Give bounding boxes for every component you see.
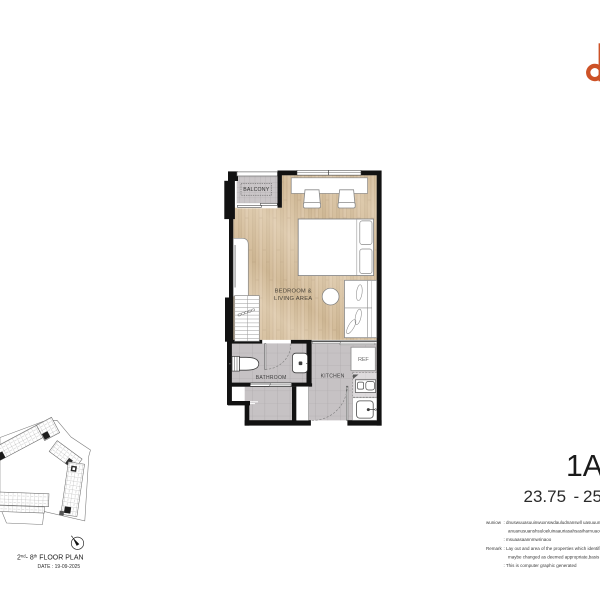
svg-text:KITCHEN: KITCHEN	[321, 373, 345, 379]
svg-text:-: -	[574, 487, 580, 506]
svg-text:BEDROOM &: BEDROOM &	[275, 289, 312, 295]
svg-text:wuniow: wuniow	[486, 520, 502, 525]
svg-text:REF: REF	[358, 357, 369, 363]
svg-text:DATE : 19-09-2025: DATE : 19-09-2025	[38, 564, 81, 570]
svg-text:25.50 SQ.M.: 25.50 SQ.M.	[583, 487, 600, 506]
svg-text:23.75: 23.75	[524, 487, 567, 506]
svg-text:2nd- 8th FLOOR PLAN: 2nd- 8th FLOOR PLAN	[17, 553, 84, 561]
svg-text:BALCONY: BALCONY	[243, 187, 270, 193]
svg-text:maybe changed as deemed approp: maybe changed as deemed appropriate,basi…	[508, 554, 600, 559]
svg-text:Remark: Remark	[486, 546, 503, 551]
svg-text:LIVING AREA: LIVING AREA	[274, 296, 312, 302]
svg-text:BATHROOM: BATHROOM	[256, 375, 287, 381]
svg-text:: dnuswuuasuuinwuxnswdauludnan: : dnuswuuasuuinwuxnswdauludnanswll uasuu…	[504, 520, 600, 525]
svg-text:: Lay out and area of the prop: : Lay out and area of the properties whi…	[504, 546, 600, 551]
svg-text:anuanusuanshsuloeluinaauriasah: anuanusuanshsuloeluinaauriasahsasiharnua…	[508, 529, 600, 534]
svg-text:1A1: 1A1	[566, 450, 600, 483]
svg-text:: msuaasaannmwrinaoo: : msuaasaannmwrinaoo	[504, 537, 552, 542]
svg-text:: This is computer graphic gen: : This is computer graphic generated	[504, 563, 577, 568]
